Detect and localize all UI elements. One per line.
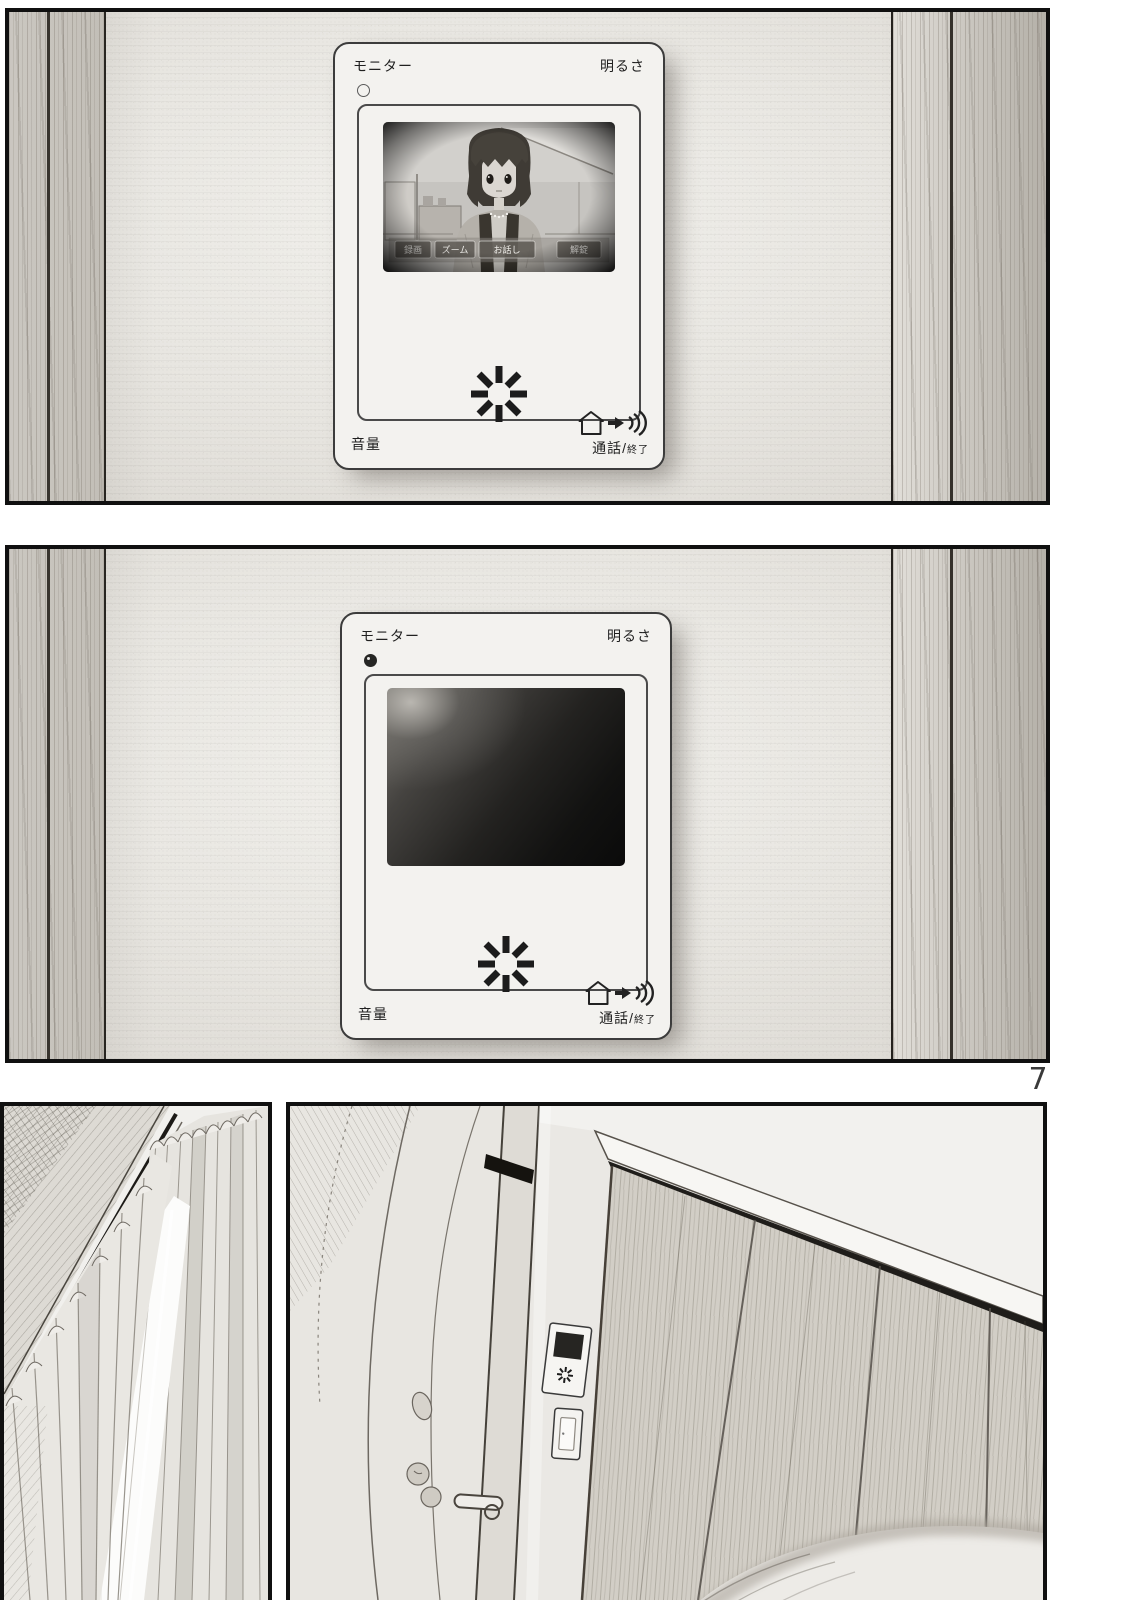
door-intercom-unit: モニター 明るさ 音量 bbox=[340, 612, 672, 1040]
panel-hallway bbox=[286, 1102, 1047, 1600]
volume-label: 音量 bbox=[351, 434, 381, 454]
screen-scene-visitor: 録画 ズーム お話し 解錠 bbox=[383, 122, 615, 272]
arrow-icon bbox=[615, 987, 631, 999]
volume-label: 音量 bbox=[358, 1004, 388, 1024]
sound-waves-icon bbox=[636, 981, 653, 1005]
call-label: 通話/ bbox=[599, 1010, 634, 1026]
curtain-scene bbox=[4, 1106, 268, 1600]
front-panel-frame: 録画 ズーム お話し 解錠 bbox=[357, 104, 641, 421]
speaker-burst-icon bbox=[470, 928, 542, 1000]
house-to-sound-icon bbox=[577, 408, 649, 438]
panel-curtains bbox=[0, 1102, 272, 1600]
sound-waves-icon bbox=[629, 411, 646, 435]
door-intercom-unit: モニター 明るさ bbox=[333, 42, 665, 470]
panel-intercom-screen-off: モニター 明るさ 音量 bbox=[5, 545, 1050, 1063]
call-end-block: 通話/終了 bbox=[584, 978, 656, 1028]
house-to-sound-icon bbox=[584, 978, 656, 1008]
manga-page: モニター 明るさ bbox=[0, 0, 1127, 1600]
led-indicator bbox=[357, 84, 370, 97]
video-screen: 録画 ズーム お話し 解錠 bbox=[383, 122, 615, 272]
end-label: 終了 bbox=[634, 1015, 656, 1026]
house-icon bbox=[580, 412, 604, 434]
end-label: 終了 bbox=[627, 445, 649, 456]
monitor-label: モニター bbox=[353, 56, 413, 76]
monitor-label: モニター bbox=[360, 626, 420, 646]
front-panel-frame bbox=[364, 674, 648, 991]
arrow-icon bbox=[608, 417, 624, 429]
panel-intercom-screen-on: モニター 明るさ bbox=[5, 8, 1050, 505]
wall-intercom-unit bbox=[542, 1323, 592, 1398]
page-number: 7 bbox=[1018, 1062, 1058, 1097]
call-label: 通話/ bbox=[592, 440, 627, 456]
led-indicator bbox=[364, 654, 377, 667]
video-screen-off bbox=[387, 688, 625, 866]
light-switch bbox=[552, 1408, 583, 1460]
wall-intercom-screen bbox=[553, 1332, 584, 1360]
hallway-scene bbox=[290, 1106, 1043, 1600]
house-icon bbox=[587, 982, 611, 1004]
brightness-label: 明るさ bbox=[607, 626, 652, 646]
brightness-label: 明るさ bbox=[600, 56, 645, 76]
call-end-block: 通話/終了 bbox=[577, 408, 649, 458]
speaker-burst-icon bbox=[463, 358, 535, 430]
